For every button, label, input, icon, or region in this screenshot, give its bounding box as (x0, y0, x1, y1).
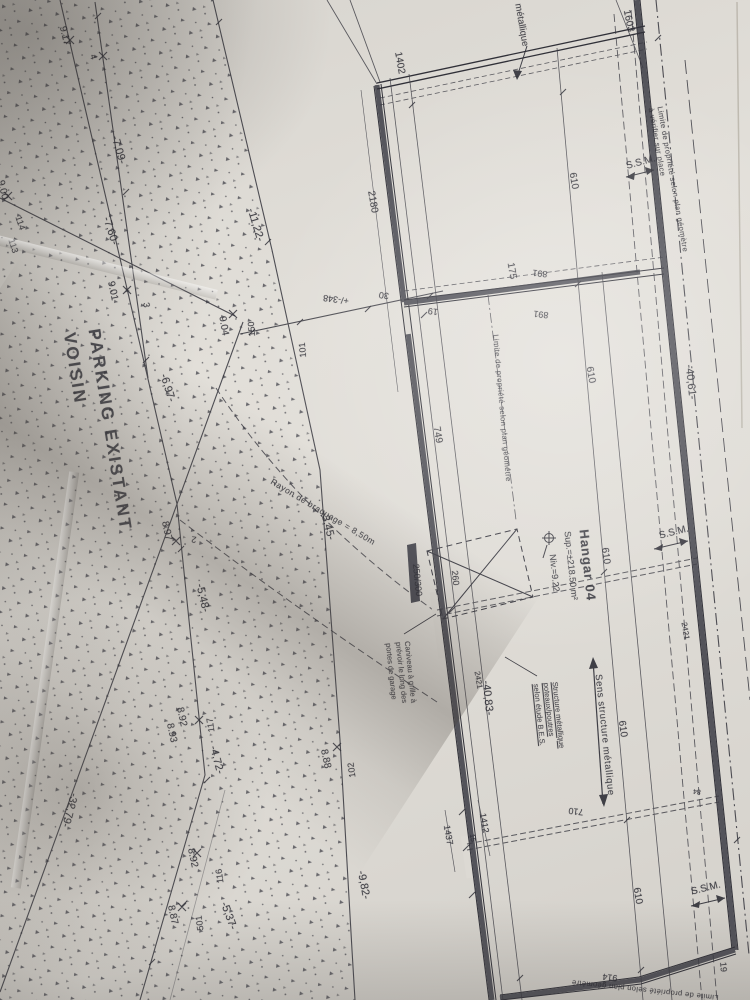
plan-photo: 1402160321806101758918911930+/-348101150… (0, 0, 750, 1000)
hangar-walls (374, 0, 738, 1000)
